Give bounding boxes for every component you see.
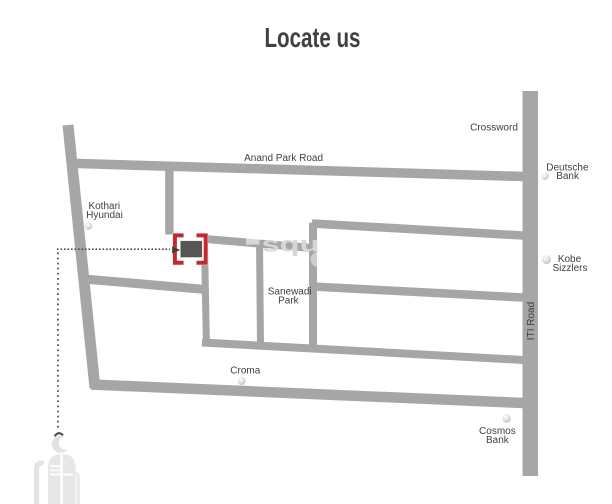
svg-text:Crossword: Crossword xyxy=(470,122,518,133)
svg-text:Anand Park Road: Anand Park Road xyxy=(244,153,323,164)
svg-text:ITI Road: ITI Road xyxy=(526,302,537,340)
svg-text:Bank: Bank xyxy=(556,171,580,182)
svg-text:Bank: Bank xyxy=(486,435,510,446)
svg-text:Park: Park xyxy=(278,296,300,307)
svg-text:Sizzlers: Sizzlers xyxy=(552,263,587,274)
svg-text:Locate us: Locate us xyxy=(265,22,361,53)
svg-text:squ: squ xyxy=(262,233,320,256)
svg-text:Hyundai: Hyundai xyxy=(86,210,123,221)
svg-text:Croma: Croma xyxy=(230,366,260,377)
